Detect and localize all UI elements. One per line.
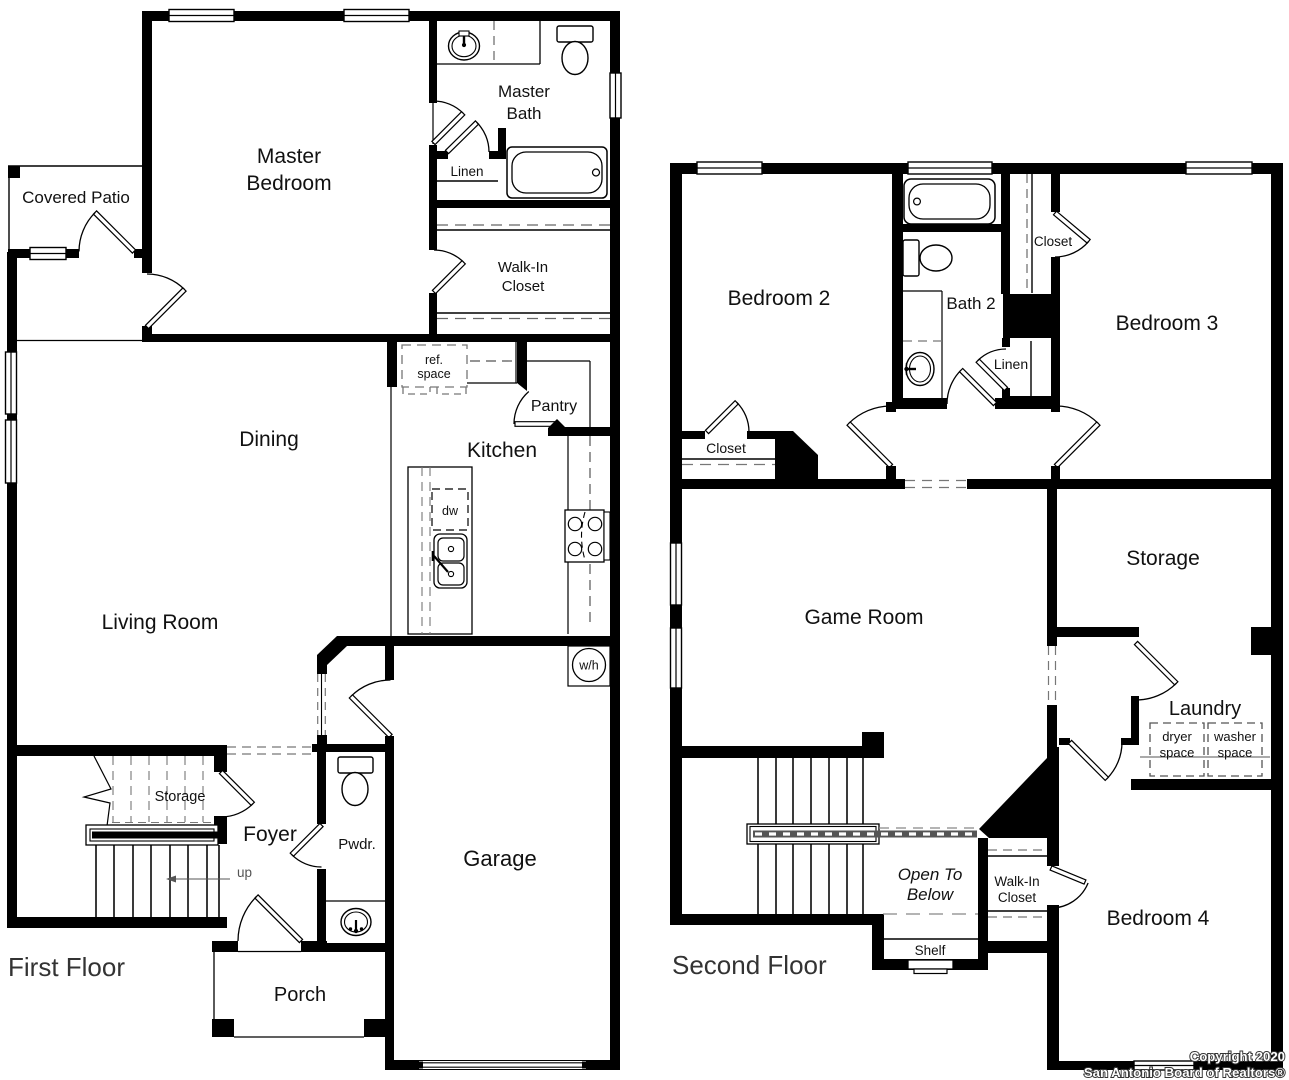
svg-text:Copyright 2020: Copyright 2020 — [1190, 1049, 1285, 1064]
svg-text:Bedroom: Bedroom — [246, 172, 331, 195]
svg-text:Covered Patio: Covered Patio — [22, 188, 130, 207]
svg-text:Porch: Porch — [274, 984, 326, 1006]
svg-text:Laundry: Laundry — [1169, 698, 1241, 720]
svg-text:Dining: Dining — [239, 428, 299, 451]
svg-text:Bedroom 2: Bedroom 2 — [728, 287, 831, 310]
svg-text:Kitchen: Kitchen — [467, 439, 537, 462]
svg-text:ref.: ref. — [425, 353, 443, 367]
svg-text:Walk-In: Walk-In — [498, 259, 548, 276]
svg-text:Linen: Linen — [994, 356, 1028, 372]
svg-text:Master: Master — [498, 82, 550, 101]
svg-text:w/h: w/h — [578, 659, 599, 673]
svg-text:Below: Below — [907, 885, 955, 904]
svg-text:Living Room: Living Room — [102, 611, 219, 634]
svg-text:Bedroom 3: Bedroom 3 — [1116, 312, 1219, 335]
svg-text:Walk-In: Walk-In — [994, 874, 1039, 889]
svg-text:Storage: Storage — [155, 789, 206, 805]
svg-text:Pantry: Pantry — [531, 398, 577, 415]
svg-text:Second Floor: Second Floor — [672, 950, 827, 980]
svg-text:San Antonio Board of Realtors®: San Antonio Board of Realtors® — [1084, 1065, 1285, 1080]
svg-text:Storage: Storage — [1126, 547, 1200, 570]
svg-text:Linen: Linen — [450, 164, 483, 179]
svg-text:Closet: Closet — [1034, 234, 1073, 249]
svg-text:Master: Master — [257, 145, 321, 168]
svg-text:Closet: Closet — [502, 278, 545, 295]
svg-text:dw: dw — [442, 504, 459, 518]
svg-text:washer: washer — [1213, 729, 1257, 744]
svg-text:dryer: dryer — [1162, 729, 1192, 744]
svg-text:Bedroom 4: Bedroom 4 — [1107, 907, 1210, 930]
svg-text:Bath 2: Bath 2 — [946, 294, 995, 313]
svg-text:space: space — [1218, 745, 1253, 760]
svg-text:up: up — [237, 865, 252, 880]
svg-text:Game Room: Game Room — [804, 606, 923, 629]
svg-text:Bath: Bath — [507, 104, 542, 123]
svg-text:Pwdr.: Pwdr. — [338, 836, 376, 853]
svg-text:Shelf: Shelf — [915, 943, 946, 958]
svg-text:First Floor: First Floor — [8, 952, 125, 982]
svg-text:space: space — [417, 367, 450, 381]
svg-text:Foyer: Foyer — [243, 823, 297, 846]
svg-text:Closet: Closet — [706, 440, 746, 456]
svg-text:Garage: Garage — [463, 846, 536, 871]
svg-text:Open To: Open To — [898, 865, 963, 884]
svg-text:Closet: Closet — [998, 890, 1037, 905]
svg-text:space: space — [1160, 745, 1195, 760]
